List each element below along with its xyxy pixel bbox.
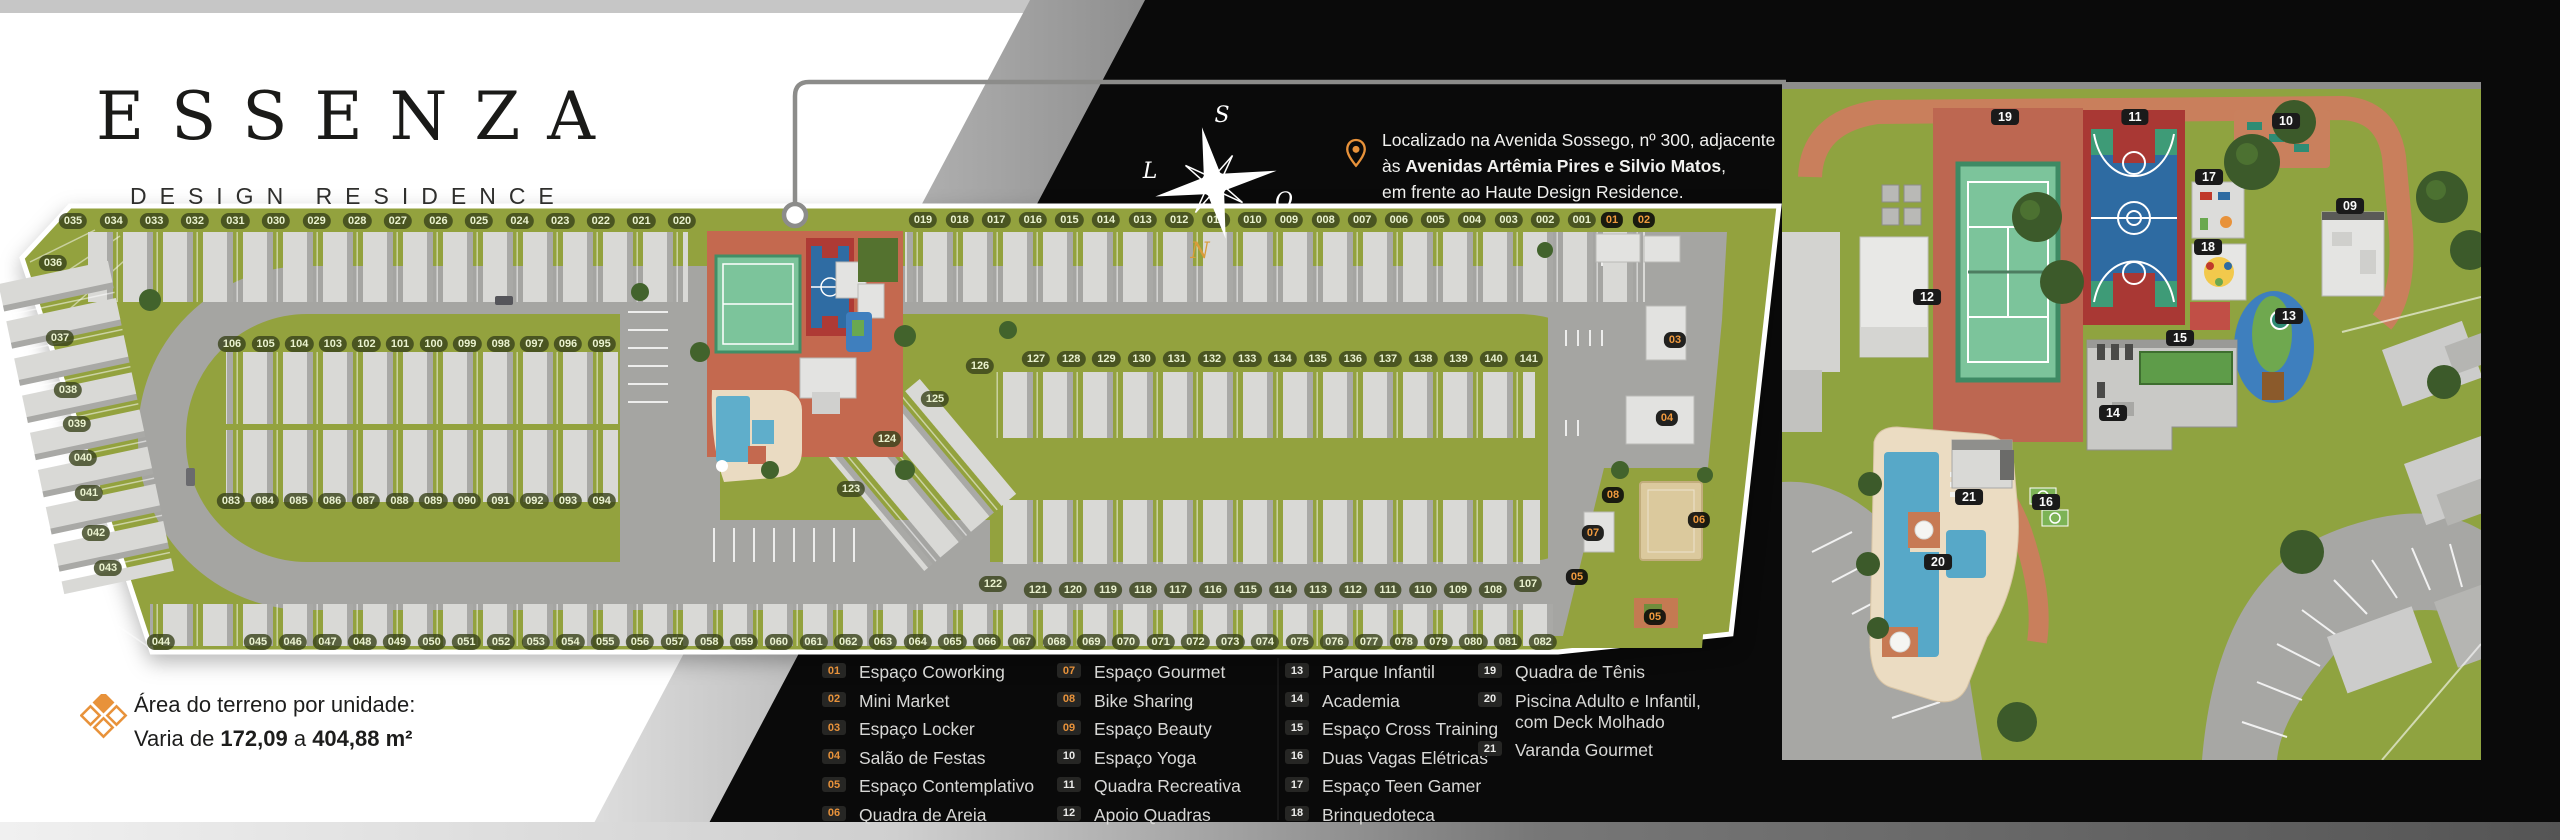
legend-item-08: 08Bike Sharing xyxy=(1057,691,1241,712)
detail-marker[interactable]: 15 xyxy=(2166,330,2194,346)
legend-label: Brinquedoteca xyxy=(1322,805,1435,826)
lot-badge[interactable]: 039 xyxy=(63,416,91,432)
lot-badge[interactable]: 002 xyxy=(1531,212,1559,228)
legend-label: Quadra de Tênis xyxy=(1515,662,1645,683)
lot-badge[interactable]: 035 xyxy=(59,213,87,229)
detail-marker[interactable]: 10 xyxy=(2272,113,2300,129)
legend-column-1: 01Espaço Coworking02Mini Market03Espaço … xyxy=(822,662,1034,833)
legend-num: 05 xyxy=(822,777,846,792)
lot-badge[interactable]: 006 xyxy=(1385,212,1413,228)
legend-label: Bike Sharing xyxy=(1094,691,1193,712)
legend-item-15: 15Espaço Cross Training xyxy=(1285,719,1498,740)
lot-badge[interactable]: 134 xyxy=(1268,351,1296,367)
club-marker[interactable]: 06 xyxy=(1688,512,1710,528)
lot-badge[interactable]: 106 xyxy=(218,336,246,352)
lot-badge[interactable]: 125 xyxy=(921,391,949,407)
lot-badge[interactable]: 138 xyxy=(1409,351,1437,367)
legend-item-16: 16Duas Vagas Elétricas xyxy=(1285,748,1498,769)
detail-marker[interactable]: 17 xyxy=(2195,169,2223,185)
lot-badge[interactable]: 032 xyxy=(181,213,209,229)
lot-badge[interactable]: 036 xyxy=(39,255,67,271)
lot-badge[interactable]: 140 xyxy=(1479,351,1507,367)
legend-item-17: 17Espaço Teen Gamer xyxy=(1285,776,1498,797)
lot-badge[interactable]: 097 xyxy=(520,336,548,352)
lot-badge[interactable]: 088 xyxy=(385,493,413,509)
lot-badge[interactable]: 123 xyxy=(837,481,865,497)
legend-num: 06 xyxy=(822,806,846,821)
lot-badge[interactable]: 037 xyxy=(46,330,74,346)
lot-badge[interactable]: 042 xyxy=(82,525,110,541)
lot-badge[interactable]: 072 xyxy=(1181,634,1209,650)
lot-badge[interactable]: 068 xyxy=(1042,634,1070,650)
legend-item-06: 06Quadra de Areia xyxy=(822,805,1034,826)
lot-badge[interactable]: 033 xyxy=(140,213,168,229)
lot-badge[interactable]: 063 xyxy=(869,634,897,650)
legend-num: 02 xyxy=(822,692,846,707)
legend-num: 09 xyxy=(1057,720,1081,735)
lot-badge[interactable]: 091 xyxy=(486,493,514,509)
legend-item-09: 09Espaço Beauty xyxy=(1057,719,1241,740)
legend-item-11: 11Quadra Recreativa xyxy=(1057,776,1241,797)
lot-badge[interactable]: 062 xyxy=(834,634,862,650)
lot-badge[interactable]: 007 xyxy=(1348,212,1376,228)
page: 0350340330320310300290280270260250240230… xyxy=(0,0,2560,840)
brand-subtitle: DESIGN RESIDENCE xyxy=(130,183,567,210)
detail-marker[interactable]: 11 xyxy=(2121,109,2148,125)
legend-item-04: 04Salão de Festas xyxy=(822,748,1034,769)
lot-badge[interactable]: 131 xyxy=(1163,351,1191,367)
legend-column-3: 13Parque Infantil14Academia15Espaço Cros… xyxy=(1285,662,1498,833)
legend-label: Varanda Gourmet xyxy=(1515,740,1653,761)
lot-badge[interactable]: 119 xyxy=(1094,582,1122,598)
lot-badge[interactable]: 113 xyxy=(1304,582,1332,598)
legend-label: Quadra de Areia xyxy=(859,805,986,826)
location-line1: Localizado na Avenida Sossego, nº 300, a… xyxy=(1382,127,1775,153)
lot-badge[interactable]: 087 xyxy=(352,493,380,509)
lot-badge[interactable]: 117 xyxy=(1164,582,1192,598)
lot-badge[interactable]: 073 xyxy=(1216,634,1244,650)
lot-badge[interactable]: 070 xyxy=(1112,634,1140,650)
legend-label: Parque Infantil xyxy=(1322,662,1435,683)
legend-num: 15 xyxy=(1285,720,1309,735)
lot-badge[interactable]: 018 xyxy=(945,212,973,228)
lot-badge[interactable]: 030 xyxy=(262,213,290,229)
lot-badge[interactable]: 004 xyxy=(1458,212,1486,228)
lot-badge[interactable]: 023 xyxy=(546,213,574,229)
lot-badge[interactable]: 028 xyxy=(343,213,371,229)
legend-item-13: 13Parque Infantil xyxy=(1285,662,1498,683)
lot-badge[interactable]: 050 xyxy=(417,634,445,650)
legend-item-14: 14Academia xyxy=(1285,691,1498,712)
lot-badge[interactable]: 127 xyxy=(1022,351,1050,367)
lot-badge[interactable]: 108 xyxy=(1479,582,1507,598)
legend-item-07: 07Espaço Gourmet xyxy=(1057,662,1241,683)
lot-badge[interactable]: 089 xyxy=(419,493,447,509)
lot-badge[interactable]: 056 xyxy=(626,634,654,650)
compass-o: O xyxy=(1275,189,1293,214)
lot-badge[interactable]: 086 xyxy=(318,493,346,509)
lot-badge[interactable]: 105 xyxy=(251,336,279,352)
lot-badge[interactable]: 065 xyxy=(938,634,966,650)
lot-badge[interactable]: 080 xyxy=(1459,634,1487,650)
lot-badge[interactable]: 024 xyxy=(505,213,533,229)
compass-s: S xyxy=(1214,103,1229,128)
lot-badge[interactable]: 052 xyxy=(487,634,515,650)
lot-badge[interactable]: 055 xyxy=(591,634,619,650)
lot-badge[interactable]: 048 xyxy=(348,634,376,650)
club-marker[interactable]: 08 xyxy=(1602,487,1624,503)
area-diamonds-icon xyxy=(80,694,128,740)
legend-item-19: 19Quadra de Tênis xyxy=(1478,662,1701,683)
legend-column-2: 07Espaço Gourmet08Bike Sharing09Espaço B… xyxy=(1057,662,1241,833)
lot-badge[interactable]: 057 xyxy=(660,634,688,650)
club-marker[interactable]: 04 xyxy=(1656,410,1678,426)
lot-badge[interactable]: 124 xyxy=(873,431,901,447)
lot-badge[interactable]: 098 xyxy=(487,336,515,352)
legend-item-05: 05Espaço Contemplativo xyxy=(822,776,1034,797)
lot-badge[interactable]: 019 xyxy=(909,212,937,228)
location-line3: em frente ao Haute Design Residence. xyxy=(1382,179,1775,205)
lot-badge[interactable]: 115 xyxy=(1234,582,1262,598)
area-title: Área do terreno por unidade: xyxy=(134,688,415,722)
legend-num: 14 xyxy=(1285,692,1309,707)
legend-label: Duas Vagas Elétricas xyxy=(1322,748,1488,769)
lot-badge[interactable]: 031 xyxy=(221,213,249,229)
legend-num: 20 xyxy=(1478,692,1502,707)
club-detail-panel[interactable]: 19111017091812131514211620 xyxy=(1782,82,2481,760)
lot-badge[interactable]: 083 xyxy=(217,493,245,509)
club-marker[interactable]: 02 xyxy=(1633,212,1655,228)
legend-num: 16 xyxy=(1285,749,1309,764)
lot-badge[interactable]: 099 xyxy=(453,336,481,352)
lot-badge[interactable]: 038 xyxy=(54,382,82,398)
lot-badge[interactable]: 116 xyxy=(1199,582,1227,598)
area-info: Área do terreno por unidade: Varia de 17… xyxy=(134,688,415,756)
lot-badge[interactable]: 014 xyxy=(1092,212,1120,228)
lot-badge[interactable]: 135 xyxy=(1303,351,1331,367)
lot-badge[interactable]: 044 xyxy=(147,634,175,650)
lot-badge[interactable]: 139 xyxy=(1444,351,1472,367)
legend-num: 03 xyxy=(822,720,846,735)
legend-label: Espaço Coworking xyxy=(859,662,1005,683)
location-pin-icon xyxy=(1342,137,1370,171)
lot-badge[interactable]: 027 xyxy=(384,213,412,229)
detail-marker[interactable]: 18 xyxy=(2194,239,2222,255)
lot-badge[interactable]: 015 xyxy=(1055,212,1083,228)
lot-badge[interactable]: 141 xyxy=(1515,351,1543,367)
lot-badge[interactable]: 110 xyxy=(1409,582,1437,598)
legend-num: 01 xyxy=(822,663,846,678)
lot-badge[interactable]: 053 xyxy=(522,634,550,650)
lot-badge[interactable]: 132 xyxy=(1198,351,1226,367)
legend-label: Espaço Yoga xyxy=(1094,748,1196,769)
lot-badge[interactable]: 077 xyxy=(1355,634,1383,650)
legend-item-10: 10Espaço Yoga xyxy=(1057,748,1241,769)
lot-badge[interactable]: 136 xyxy=(1339,351,1367,367)
lot-badge[interactable]: 092 xyxy=(520,493,548,509)
lot-badge[interactable]: 121 xyxy=(1024,582,1052,598)
legend-column-4: 19Quadra de Tênis20Piscina Adulto e Infa… xyxy=(1478,662,1701,769)
lot-badge[interactable]: 100 xyxy=(419,336,447,352)
lot-badge[interactable]: 016 xyxy=(1019,212,1047,228)
area-range: Varia de 172,09 a 404,88 m² xyxy=(134,722,415,756)
legend-item-02: 02Mini Market xyxy=(822,691,1034,712)
lot-badge[interactable]: 049 xyxy=(383,634,411,650)
lot-badge[interactable]: 094 xyxy=(588,493,616,509)
lot-badge[interactable]: 101 xyxy=(386,336,414,352)
lot-badge[interactable]: 071 xyxy=(1147,634,1175,650)
legend-label: Salão de Festas xyxy=(859,748,985,769)
club-marker[interactable]: 03 xyxy=(1664,332,1686,348)
legend-item-01: 01Espaço Coworking xyxy=(822,662,1034,683)
lot-badge[interactable]: 137 xyxy=(1374,351,1402,367)
location-line2: às Avenidas Artêmia Pires e Silvio Matos… xyxy=(1382,153,1775,179)
detail-marker[interactable]: 12 xyxy=(1913,289,1941,305)
legend-num: 13 xyxy=(1285,663,1309,678)
lot-badge[interactable]: 040 xyxy=(69,450,97,466)
detail-marker[interactable]: 20 xyxy=(1924,554,1952,570)
lot-badge[interactable]: 026 xyxy=(424,213,452,229)
lot-badge[interactable]: 103 xyxy=(319,336,347,352)
lot-badge[interactable]: 074 xyxy=(1251,634,1279,650)
lot-badge[interactable]: 059 xyxy=(730,634,758,650)
detail-marker[interactable]: 16 xyxy=(2032,494,2060,510)
lot-badge[interactable]: 076 xyxy=(1320,634,1348,650)
lot-badge[interactable]: 017 xyxy=(982,212,1010,228)
lot-badge[interactable]: 066 xyxy=(973,634,1001,650)
lot-badge[interactable]: 020 xyxy=(668,213,696,229)
lot-badge[interactable]: 095 xyxy=(587,336,615,352)
legend-label: Espaço Beauty xyxy=(1094,719,1212,740)
legend-label: Apoio Quadras xyxy=(1094,805,1211,826)
legend-item-20: 20Piscina Adulto e Infantil, com Deck Mo… xyxy=(1478,691,1701,733)
detail-marker[interactable]: 09 xyxy=(2336,198,2364,214)
lot-badge[interactable]: 001 xyxy=(1568,212,1596,228)
lot-badge[interactable]: 041 xyxy=(75,485,103,501)
legend-num: 07 xyxy=(1057,663,1081,678)
lot-badge[interactable]: 096 xyxy=(554,336,582,352)
detail-marker[interactable]: 21 xyxy=(1955,489,1983,505)
legend-label: Espaço Cross Training xyxy=(1322,719,1498,740)
lot-badge[interactable]: 060 xyxy=(765,634,793,650)
detail-marker[interactable]: 19 xyxy=(1991,109,2019,125)
lot-badge[interactable]: 029 xyxy=(302,213,330,229)
compass-rose: S L O N xyxy=(1138,98,1298,268)
lot-badge[interactable]: 058 xyxy=(695,634,723,650)
legend-label: Academia xyxy=(1322,691,1400,712)
lot-badge[interactable]: 084 xyxy=(251,493,279,509)
compass-n: N xyxy=(1189,239,1210,264)
location-text: Localizado na Avenida Sossego, nº 300, a… xyxy=(1382,127,1775,205)
lot-badge[interactable]: 067 xyxy=(1008,634,1036,650)
legend-num: 21 xyxy=(1478,741,1502,756)
lot-badge[interactable]: 104 xyxy=(285,336,313,352)
lot-badge[interactable]: 102 xyxy=(352,336,380,352)
club-marker[interactable]: 05 xyxy=(1566,569,1588,585)
legend-num: 04 xyxy=(822,749,846,764)
club-marker[interactable]: 01 xyxy=(1601,212,1623,228)
lot-badge[interactable]: 085 xyxy=(284,493,312,509)
legend-item-21: 21Varanda Gourmet xyxy=(1478,740,1701,761)
legend-label: Quadra Recreativa xyxy=(1094,776,1241,797)
lot-badge[interactable]: 120 xyxy=(1059,582,1087,598)
detail-marker[interactable]: 13 xyxy=(2275,308,2303,324)
legend-label: Piscina Adulto e Infantil, com Deck Molh… xyxy=(1515,691,1701,733)
legend-num: 11 xyxy=(1057,777,1081,792)
lot-badge[interactable]: 090 xyxy=(453,493,481,509)
club-marker[interactable]: 07 xyxy=(1582,525,1604,541)
lot-badge[interactable]: 107 xyxy=(1514,576,1542,592)
lot-badge[interactable]: 114 xyxy=(1269,582,1297,598)
legend-label: Mini Market xyxy=(859,691,949,712)
legend-label: Espaço Locker xyxy=(859,719,975,740)
brand-logo: ESSENZA xyxy=(96,78,622,155)
lot-badge[interactable]: 118 xyxy=(1129,582,1157,598)
legend-num: 10 xyxy=(1057,749,1081,764)
lot-badge[interactable]: 093 xyxy=(554,493,582,509)
lot-badge[interactable]: 025 xyxy=(465,213,493,229)
legend-num: 18 xyxy=(1285,806,1309,821)
lot-badge[interactable]: 034 xyxy=(99,213,127,229)
lot-badge[interactable]: 075 xyxy=(1285,634,1313,650)
lot-badge[interactable]: 008 xyxy=(1311,212,1339,228)
lot-badge[interactable]: 109 xyxy=(1444,582,1472,598)
lot-badge[interactable]: 022 xyxy=(587,213,615,229)
lot-badge[interactable]: 078 xyxy=(1390,634,1418,650)
lot-badge[interactable]: 079 xyxy=(1424,634,1452,650)
lot-badge[interactable]: 061 xyxy=(799,634,827,650)
lot-badge[interactable]: 111 xyxy=(1374,582,1401,598)
legend-num: 08 xyxy=(1057,692,1081,707)
lot-badge[interactable]: 069 xyxy=(1077,634,1105,650)
lot-badge[interactable]: 054 xyxy=(556,634,584,650)
lot-badge[interactable]: 130 xyxy=(1127,351,1155,367)
lot-badge[interactable]: 003 xyxy=(1494,212,1522,228)
lot-badge[interactable]: 133 xyxy=(1233,351,1261,367)
legend-item-18: 18Brinquedoteca xyxy=(1285,805,1498,826)
lot-badge[interactable]: 128 xyxy=(1057,351,1085,367)
lot-badge[interactable]: 005 xyxy=(1421,212,1449,228)
legend-num: 19 xyxy=(1478,663,1502,678)
lot-badge[interactable]: 064 xyxy=(903,634,931,650)
lot-badge[interactable]: 051 xyxy=(452,634,480,650)
detail-markers: 19111017091812131514211620 xyxy=(1782,82,2481,760)
legend-num: 17 xyxy=(1285,777,1309,792)
detail-marker[interactable]: 14 xyxy=(2099,405,2127,421)
legend-item-03: 03Espaço Locker xyxy=(822,719,1034,740)
lot-badge[interactable]: 112 xyxy=(1339,582,1367,598)
lot-badge[interactable]: 046 xyxy=(279,634,307,650)
lot-badge[interactable]: 082 xyxy=(1528,634,1556,650)
legend-label: Espaço Teen Gamer xyxy=(1322,776,1481,797)
lot-badge[interactable]: 045 xyxy=(244,634,272,650)
lot-badge[interactable]: 126 xyxy=(966,358,994,374)
legend-num: 12 xyxy=(1057,806,1081,821)
legend-item-12: 12Apoio Quadras xyxy=(1057,805,1241,826)
lot-badge[interactable]: 043 xyxy=(94,560,122,576)
compass-l: L xyxy=(1142,159,1158,184)
lot-badge[interactable]: 122 xyxy=(979,576,1007,592)
lot-badge[interactable]: 047 xyxy=(313,634,341,650)
lot-badge[interactable]: 129 xyxy=(1092,351,1120,367)
lot-badge[interactable]: 081 xyxy=(1494,634,1522,650)
legend-label: Espaço Contemplativo xyxy=(859,776,1034,797)
lot-badge[interactable]: 021 xyxy=(627,213,655,229)
legend-label: Espaço Gourmet xyxy=(1094,662,1225,683)
club-marker[interactable]: 05 xyxy=(1644,609,1666,625)
